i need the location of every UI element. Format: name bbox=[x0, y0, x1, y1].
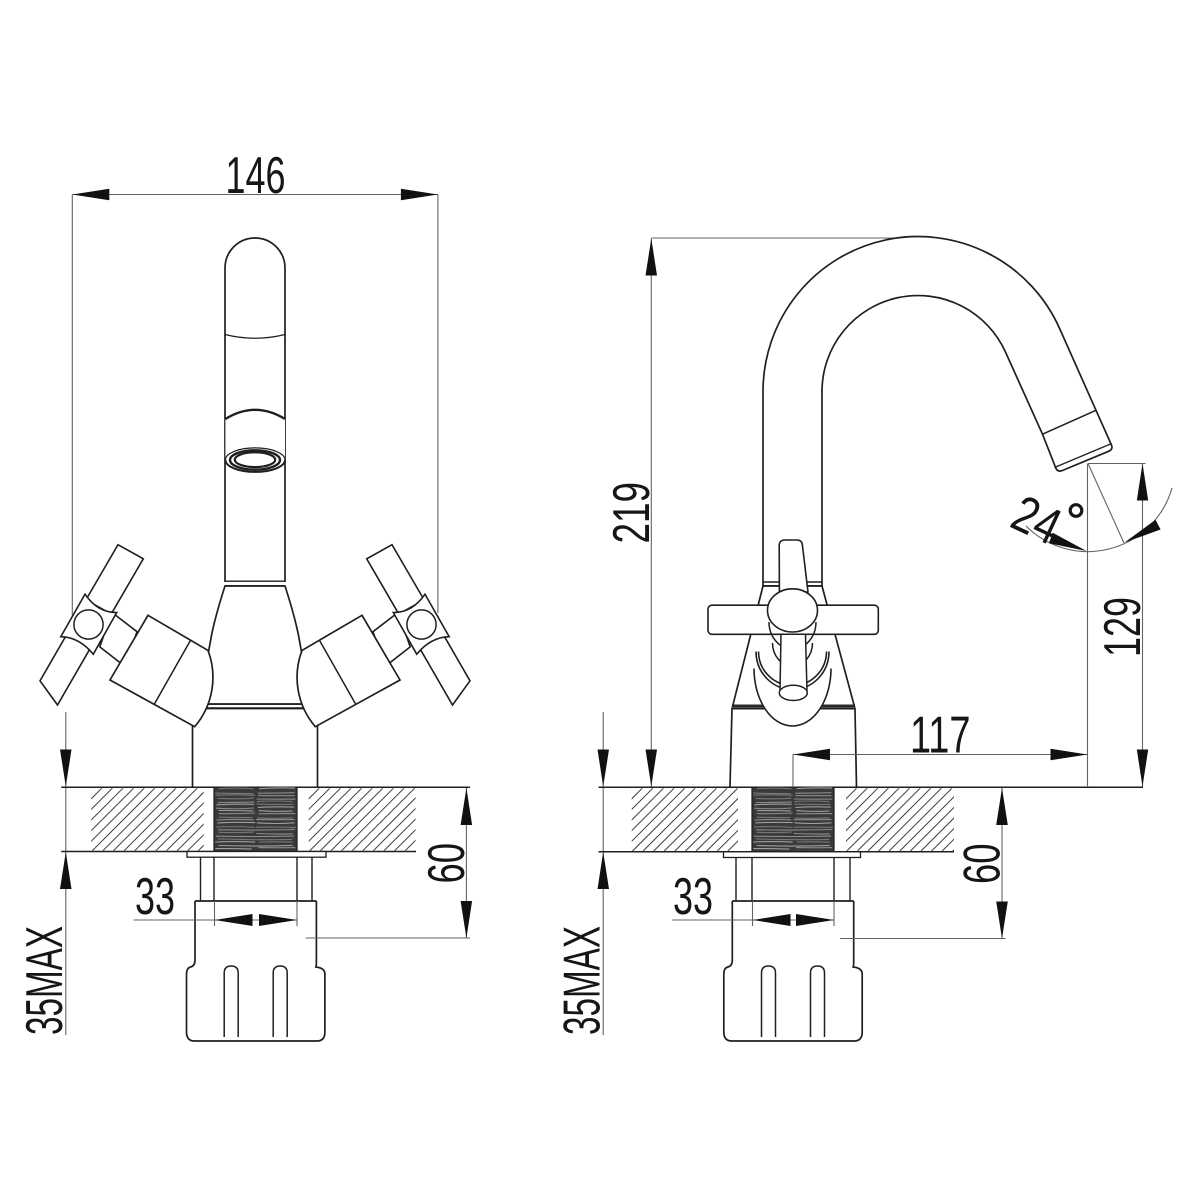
svg-text:33: 33 bbox=[135, 867, 175, 925]
svg-text:146: 146 bbox=[226, 146, 286, 204]
svg-text:219: 219 bbox=[602, 482, 660, 544]
svg-text:35MAX: 35MAX bbox=[15, 926, 73, 1035]
svg-text:129: 129 bbox=[1093, 597, 1151, 657]
svg-text:60: 60 bbox=[953, 844, 1011, 885]
svg-text:60: 60 bbox=[417, 843, 475, 884]
svg-text:35MAX: 35MAX bbox=[553, 926, 611, 1035]
svg-text:117: 117 bbox=[910, 706, 971, 764]
svg-text:33: 33 bbox=[673, 867, 713, 925]
